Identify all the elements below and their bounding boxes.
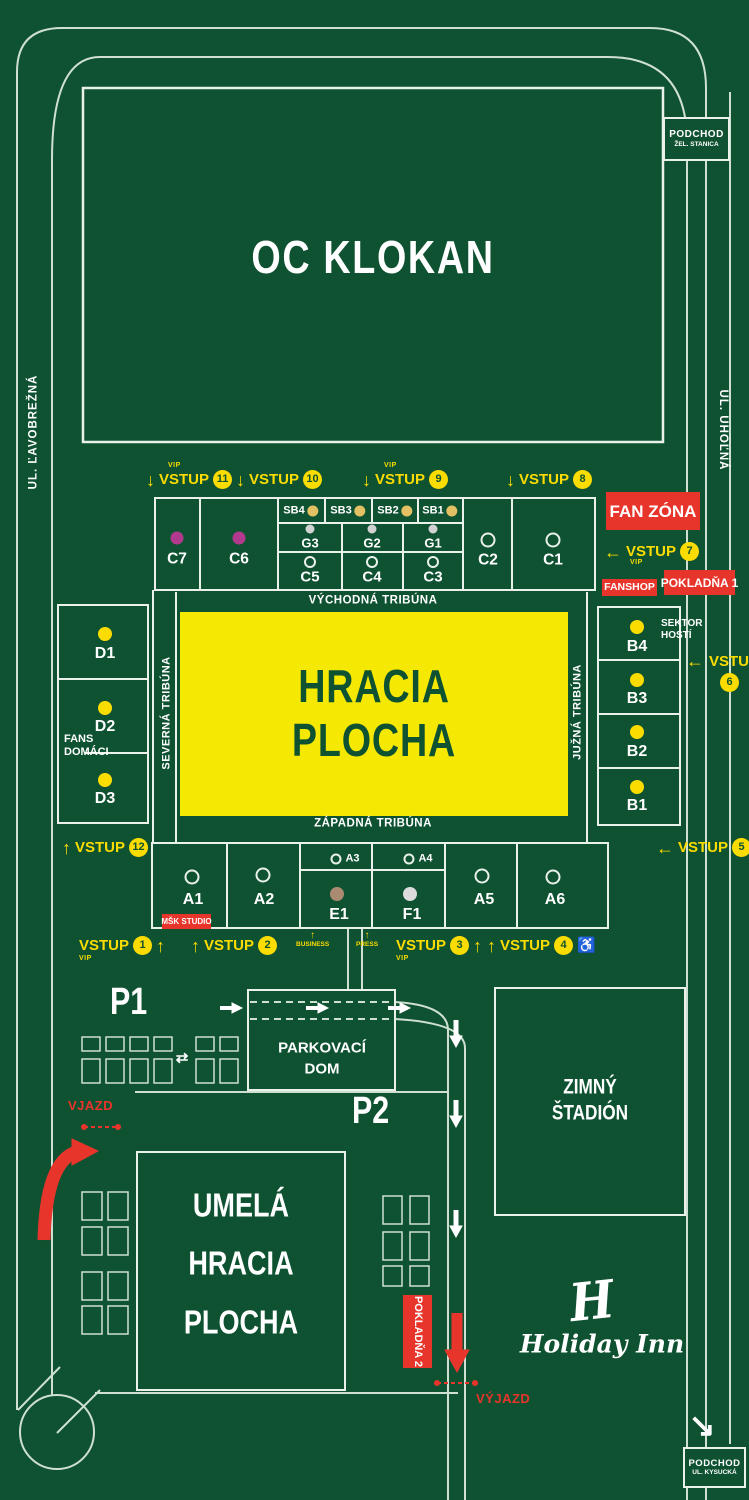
entrance-1: VIP VSTUP 1 ↑ (79, 936, 165, 955)
holiday-inn-logo-icon: H (567, 1274, 616, 1330)
sector-sb3: SB3 (330, 506, 365, 517)
arrow-up-icon: ↑ (156, 937, 165, 955)
oc-klokan-label: OC KLOKAN (251, 234, 494, 280)
fanshop-box: FANSHOP (602, 579, 657, 596)
sector-g3-label: G3 (301, 537, 318, 550)
sector-c5-dot (304, 556, 316, 568)
entrance-11: VIP ↓ VSTUP 11 (146, 470, 232, 489)
sector-c3-dot (427, 556, 439, 568)
entrance-6: ←VSTUP 6 (686, 652, 749, 692)
arrow-left-icon: ← (686, 652, 704, 670)
sector-b4-label: B4 (627, 639, 647, 655)
tribune-west-label: ZÁPADNÁ TRIBÚNA (314, 818, 432, 830)
entrance-9-number: 9 (429, 470, 448, 489)
sector-a6-dot (546, 870, 561, 885)
arrow-down-icon: ↓ (506, 471, 515, 489)
sector-sb2-label: SB2 (377, 506, 398, 517)
sector-sb4-label: SB4 (283, 506, 304, 517)
entrance-11-label: VSTUP (159, 472, 209, 487)
parking-p2-label: P2 (352, 1092, 389, 1130)
sector-f1-dot (403, 887, 417, 901)
podchod-zel-stanica-box: PODCHOD ŽEL. STANICA (663, 117, 730, 161)
sector-c6-label: C6 (229, 551, 249, 567)
arrow-up-icon: ↑ (473, 937, 482, 955)
parking-p1-label: P1 (110, 983, 147, 1021)
sector-a3-dot (330, 854, 341, 865)
podchod-bottom-line2: UL. KYSUCKÁ (692, 1470, 736, 1477)
arrow-down-icon: ↓ (362, 471, 371, 489)
parking-stalls (82, 1037, 429, 1334)
umela-line1: UMELÁ (193, 1189, 289, 1222)
sector-c1-dot (546, 533, 561, 548)
arrow-up-icon: ↑ (487, 937, 496, 955)
sector-g1-label: G1 (424, 537, 441, 550)
sector-sb3-dot (355, 506, 366, 517)
sector-a5-dot (475, 869, 490, 884)
arrow-up-icon: ↑ (365, 931, 370, 941)
sector-b3-label: B3 (627, 691, 647, 707)
entrance-9-vip: VIP (384, 462, 397, 469)
business-entrance: ↑ BUSINESS (296, 931, 329, 949)
business-label: BUSINESS (296, 942, 329, 949)
entrance-7-label: VSTUP (626, 544, 676, 559)
sector-sb1-dot (447, 506, 458, 517)
entrance-11-vip: VIP (168, 462, 181, 469)
entrance-4-number: 4 (554, 936, 573, 955)
sektor-hosti-line2: HOSTÍ (661, 631, 692, 641)
sector-sb2-dot (402, 506, 413, 517)
sector-g2-label: G2 (363, 537, 380, 550)
entrance-10-label: VSTUP (249, 472, 299, 487)
sector-a4-dot (403, 854, 414, 865)
entrance-5-number: 5 (732, 838, 749, 857)
umela-line3: PLOCHA (184, 1306, 298, 1339)
entrance-7: VIP ← VSTUP 7 (604, 542, 699, 561)
sector-b1-label: B1 (627, 798, 647, 814)
entrance-3-vip: VIP (396, 955, 409, 962)
podchod-bottom-line1: PODCHOD (688, 1459, 740, 1469)
arrow-left-icon: ← (604, 543, 622, 561)
sector-e1-label: E1 (329, 907, 349, 923)
fanshop-label: FANSHOP (604, 582, 655, 593)
tribune-north-label: SEVERNÁ TRIBÚNA (162, 656, 173, 769)
entrance-9-label: VSTUP (375, 472, 425, 487)
podchod-top-line2: ŽEL. STANICA (674, 142, 718, 149)
pokladna-1-box: POKLADŇA 1 (664, 570, 735, 595)
sector-a4: A4 (403, 854, 432, 865)
sector-sb4-dot (308, 506, 319, 517)
sector-e1-dot (330, 887, 344, 901)
parkovaci-dom-line2: DOM (305, 1062, 340, 1077)
wheelchair-icon: ♿ (577, 938, 596, 953)
entrance-10: ↓ VSTUP 10 (236, 470, 322, 489)
entrance-10-number: 10 (303, 470, 322, 489)
sector-c7-label: C7 (167, 551, 187, 567)
two-way-arrow-icon: ⇄ (176, 1051, 189, 1066)
sector-a3-label: A3 (345, 854, 359, 865)
entrance-2-label: VSTUP (204, 938, 254, 953)
entrance-3: VIP VSTUP 3 ↑ (396, 936, 482, 955)
msk-studio-label: MŠK STUDIO (161, 918, 211, 926)
entrance-6-label: VSTUP (709, 654, 749, 669)
sector-c3-label: C3 (423, 570, 442, 585)
sector-c2-dot (481, 533, 496, 548)
fan-zona-box: FAN ZÓNA (606, 492, 700, 530)
sector-a5-label: A5 (474, 892, 494, 908)
arrow-up-icon: ↑ (62, 839, 71, 857)
vjazd-label: VJAZD (68, 1099, 113, 1112)
entrance-6-number: 6 (720, 673, 739, 692)
sector-d3-label: D3 (95, 791, 115, 807)
sector-sb1-label: SB1 (422, 506, 443, 517)
sector-a2-label: A2 (254, 892, 274, 908)
field-label-line1: HRACIA (298, 663, 450, 709)
zimny-stadion-line2: ŠTADIÓN (552, 1103, 628, 1124)
pokladna-2-box: POKLADŇA 2 (403, 1295, 432, 1368)
arrow-left-icon: ← (656, 839, 674, 857)
tribune-east-label: VÝCHODNÁ TRIBÚNA (309, 595, 438, 607)
entrance-8-number: 8 (573, 470, 592, 489)
arrow-down-icon: ↓ (146, 471, 155, 489)
entrance-4-label: VSTUP (500, 938, 550, 953)
sector-g3-dot (306, 525, 315, 534)
parkovaci-dom-line1: PARKOVACÍ (278, 1041, 366, 1056)
street-right-label: UL. UHOĽNÁ (716, 390, 728, 471)
pokladna-1-label: POKLADŇA 1 (661, 577, 739, 589)
entrance-7-vip: VIP (630, 559, 643, 566)
entrance-5-label: VSTUP (678, 840, 728, 855)
tribune-south-label: JUŽNÁ TRIBÚNA (573, 664, 584, 760)
entrance-1-label: VSTUP (79, 938, 129, 953)
fans-domaci-line2: DOMÁCI (64, 747, 109, 758)
holiday-inn-name: Holiday Inn (520, 1332, 684, 1357)
sector-f1-label: F1 (403, 907, 422, 923)
sector-sb2: SB2 (377, 506, 412, 517)
sector-b2-label: B2 (627, 744, 647, 760)
press-entrance: ↑ PRESS (356, 931, 378, 949)
sektor-hosti-line1: SEKTOR (661, 619, 703, 629)
entrance-7-number: 7 (680, 542, 699, 561)
sector-a2-dot (256, 868, 271, 883)
arrow-down-right-icon: ↘ (689, 1409, 716, 1441)
sector-a1-label: A1 (183, 892, 203, 908)
fan-zona-label: FAN ZÓNA (610, 503, 697, 520)
sector-a6-label: A6 (545, 892, 565, 908)
entrance-4: ↑ VSTUP 4 ♿ (487, 936, 596, 955)
arrow-down-icon: ↓ (236, 471, 245, 489)
sector-g1-dot (429, 525, 438, 534)
stadium-map: UL. ĽAVOBREŽNÁ UL. UHOĽNÁ OC KLOKAN PODC… (0, 0, 749, 1500)
sector-sb1: SB1 (422, 506, 457, 517)
sector-c6-dot (233, 532, 246, 545)
arrow-up-icon: ↑ (310, 931, 315, 941)
sector-b1-dot (630, 780, 644, 794)
sector-d3-dot (98, 773, 112, 787)
sector-b3-dot (630, 673, 644, 687)
sector-c4-dot (366, 556, 378, 568)
zimny-stadion-line1: ZIMNÝ (563, 1077, 617, 1098)
sector-sb3-label: SB3 (330, 506, 351, 517)
msk-studio-box: MŠK STUDIO (162, 914, 211, 929)
sector-c7-dot (171, 532, 184, 545)
entrance-12: ↑ VSTUP 12 (62, 838, 148, 857)
entrance-3-number: 3 (450, 936, 469, 955)
entrance-11-number: 11 (213, 470, 232, 489)
entrance-2: ↑ VSTUP 2 (191, 936, 277, 955)
entrance-3-label: VSTUP (396, 938, 446, 953)
sector-d1-dot (98, 627, 112, 641)
sector-c2-label: C2 (478, 552, 498, 568)
entrance-12-number: 12 (129, 838, 148, 857)
entrance-12-label: VSTUP (75, 840, 125, 855)
entrance-5: ← VSTUP 5 (656, 838, 749, 857)
sector-g2-dot (368, 525, 377, 534)
sector-d2-label: D2 (95, 719, 115, 735)
fans-domaci-line1: FANS (64, 734, 93, 745)
entrance-9: VIP ↓ VSTUP 9 (362, 470, 448, 489)
sector-a1-dot (185, 870, 200, 885)
entrance-8: ↓ VSTUP 8 (506, 470, 592, 489)
sector-b4-dot (630, 620, 644, 634)
press-label: PRESS (356, 942, 378, 949)
vyjazd-label: VÝJAZD (476, 1392, 530, 1405)
umela-line2: HRACIA (188, 1247, 293, 1280)
sector-c4-label: C4 (362, 570, 381, 585)
sector-d1-label: D1 (95, 646, 115, 662)
arrow-up-icon: ↑ (191, 937, 200, 955)
entrance-2-number: 2 (258, 936, 277, 955)
sector-a4-label: A4 (418, 854, 432, 865)
sector-b2-dot (630, 725, 644, 739)
sector-c5-label: C5 (300, 570, 319, 585)
street-left-label: UL. ĽAVOBREŽNÁ (28, 375, 40, 490)
sector-d2-dot (98, 701, 112, 715)
entrance-8-label: VSTUP (519, 472, 569, 487)
field-label-line2: PLOCHA (292, 717, 456, 763)
sector-c1-label: C1 (543, 552, 563, 568)
podchod-kysucka-box: PODCHOD UL. KYSUCKÁ (683, 1447, 746, 1488)
pokladna-2-label: POKLADŇA 2 (412, 1296, 423, 1367)
entrance-1-number: 1 (133, 936, 152, 955)
sector-a3: A3 (330, 854, 359, 865)
podchod-top-line1: PODCHOD (669, 130, 724, 140)
sector-sb4: SB4 (283, 506, 318, 517)
entrance-1-vip: VIP (79, 955, 92, 962)
